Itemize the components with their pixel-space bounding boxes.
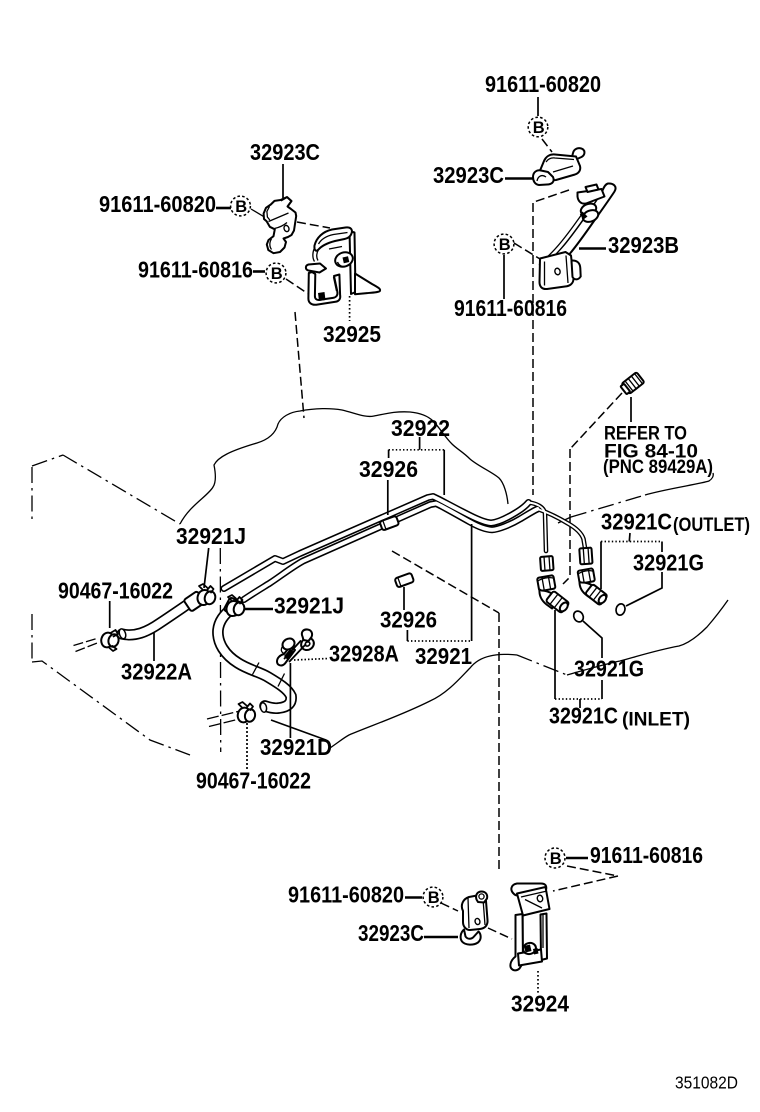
svg-text:B: B [499, 236, 511, 254]
svg-text:32926: 32926 [380, 607, 437, 633]
svg-text:32921G: 32921G [633, 550, 704, 576]
svg-text:32925: 32925 [323, 321, 381, 347]
svg-text:32923B: 32923B [608, 232, 679, 258]
svg-text:32922: 32922 [391, 415, 450, 441]
svg-text:B: B [428, 889, 440, 907]
svg-text:91611-60820: 91611-60820 [99, 191, 216, 217]
svg-text:32922A: 32922A [121, 659, 192, 685]
svg-text:32928A: 32928A [329, 641, 399, 667]
svg-text:351082D: 351082D [675, 1073, 738, 1093]
svg-text:32921G: 32921G [574, 656, 644, 682]
svg-text:32926: 32926 [359, 456, 418, 482]
svg-text:91611-60816: 91611-60816 [138, 257, 253, 283]
svg-text:32921C: 32921C [601, 509, 672, 535]
svg-text:32921J: 32921J [274, 593, 344, 619]
svg-text:32923C: 32923C [250, 139, 320, 165]
svg-text:32921J: 32921J [176, 523, 246, 549]
svg-text:32923C: 32923C [358, 920, 424, 946]
svg-text:B: B [271, 265, 283, 283]
svg-text:(INLET): (INLET) [622, 710, 690, 731]
svg-text:32923C: 32923C [433, 162, 504, 188]
svg-text:(OUTLET): (OUTLET) [673, 515, 750, 536]
svg-text:90467-16022: 90467-16022 [196, 768, 311, 794]
svg-text:91611-60820: 91611-60820 [288, 882, 404, 908]
svg-text:91611-60820: 91611-60820 [485, 71, 601, 97]
svg-text:B: B [533, 119, 545, 137]
svg-text:91611-60816: 91611-60816 [454, 295, 567, 321]
svg-text:B: B [550, 850, 562, 868]
svg-text:B: B [235, 198, 247, 216]
svg-text:90467-16022: 90467-16022 [58, 578, 173, 604]
svg-text:91611-60816: 91611-60816 [590, 842, 703, 868]
svg-text:(PNC 89429A): (PNC 89429A) [603, 457, 713, 478]
svg-text:32921: 32921 [415, 643, 472, 669]
svg-text:32921C: 32921C [549, 703, 618, 729]
svg-text:32924: 32924 [511, 991, 569, 1017]
